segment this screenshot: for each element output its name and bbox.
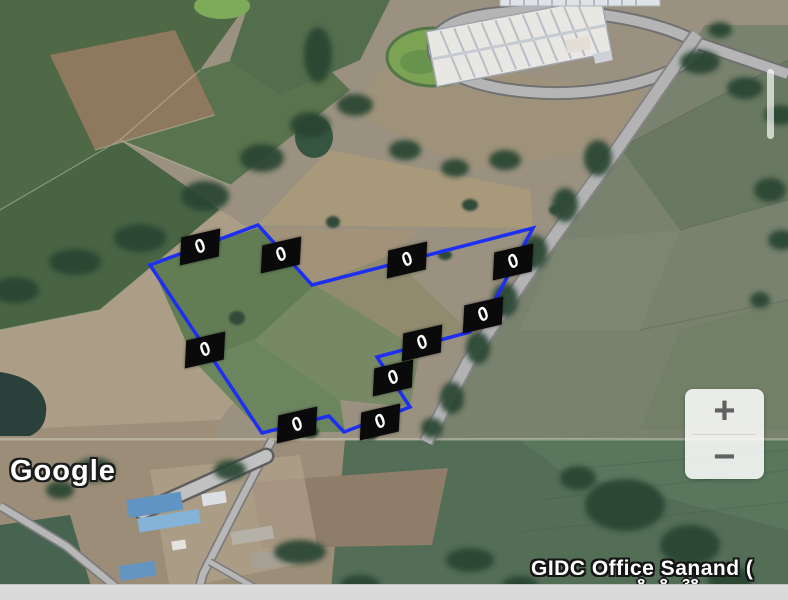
edge-distance-value: 0 [384, 367, 403, 389]
edge-marker-layer: 0000000000 [0, 0, 788, 600]
edge-distance-value: 0 [196, 339, 215, 361]
edge-distance-marker[interactable]: 0 [360, 403, 400, 440]
edge-distance-marker[interactable]: 0 [277, 406, 317, 443]
edge-distance-marker[interactable]: 0 [185, 331, 225, 368]
edge-distance-marker[interactable]: 0 [373, 359, 413, 396]
zoom-in-button[interactable]: + [685, 389, 764, 434]
edge-distance-marker[interactable]: 0 [387, 241, 427, 278]
map-view: 0000000000 Google GIDC Office Sanand ( 8… [0, 0, 788, 600]
edge-distance-marker[interactable]: 0 [493, 243, 533, 280]
edge-distance-value: 0 [413, 332, 432, 354]
zoom-out-button[interactable]: − [685, 435, 764, 480]
edge-distance-value: 0 [191, 236, 210, 258]
edge-distance-value: 0 [504, 251, 523, 273]
edge-distance-marker[interactable]: 0 [463, 296, 503, 333]
google-logo: Google [10, 455, 116, 488]
edge-distance-marker[interactable]: 0 [402, 324, 442, 361]
edge-distance-value: 0 [288, 414, 307, 436]
edge-distance-value: 0 [398, 249, 417, 271]
bottom-ui-bar [0, 584, 788, 600]
zoom-control: + − [685, 389, 764, 479]
edge-distance-value: 0 [371, 411, 390, 433]
edge-distance-value: 0 [272, 244, 291, 266]
edge-distance-marker[interactable]: 0 [261, 236, 301, 273]
edge-distance-marker[interactable]: 0 [180, 228, 220, 265]
scrollbar-thumb[interactable] [767, 69, 774, 139]
edge-distance-value: 0 [474, 304, 493, 326]
